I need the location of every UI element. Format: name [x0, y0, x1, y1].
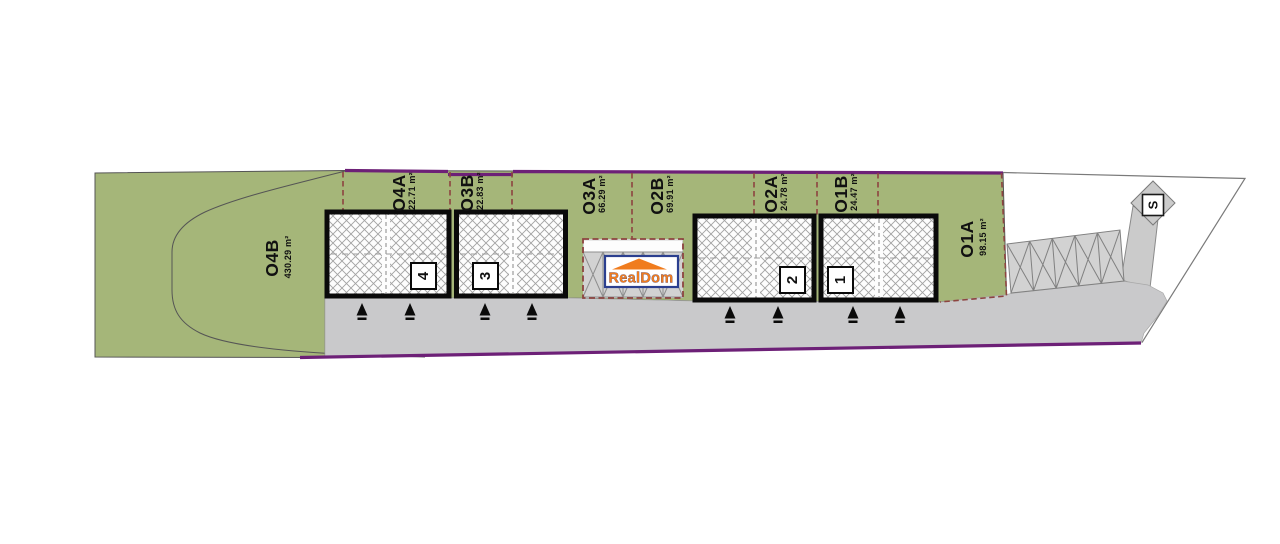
- plot-label-o4a: O4A 22.71 m²: [389, 172, 417, 212]
- svg-text:O2A: O2A: [761, 175, 781, 212]
- plot-label-o3b: O3B 22.83 m²: [457, 172, 485, 212]
- realdom-logo-text: RealDom: [609, 271, 674, 287]
- plot-label-o3a: O3A 66.29 m²: [579, 175, 607, 215]
- plot-label-o2b: O2B 69.91 m²: [647, 175, 675, 215]
- unit-1-label: 1: [832, 276, 849, 284]
- svg-text:O3B: O3B: [457, 174, 477, 211]
- svg-text:O4A: O4A: [389, 174, 409, 211]
- plot-label-o1b: O1B 24.47 m²: [831, 173, 859, 213]
- svg-text:O3A: O3A: [579, 177, 599, 214]
- svg-text:O1B: O1B: [831, 175, 851, 212]
- unit-4-label: 4: [415, 271, 432, 280]
- svg-text:24.78 m²: 24.78 m²: [779, 173, 789, 211]
- unit-2-label: 2: [784, 276, 801, 284]
- plot-label-o4b: O4B 430.29 m²: [262, 236, 293, 279]
- plot-label-o2a: O2A 24.78 m²: [761, 173, 789, 213]
- site-plan-drawing: S: [0, 0, 1280, 544]
- svg-text:O2B: O2B: [647, 177, 667, 214]
- svg-text:O4B: O4B: [262, 239, 282, 276]
- site-plan-canvas: S: [0, 0, 1280, 544]
- svg-text:98.15 m²: 98.15 m²: [978, 218, 988, 256]
- svg-text:66.29 m²: 66.29 m²: [597, 175, 607, 213]
- svg-text:O1A: O1A: [957, 220, 977, 257]
- realdom-logo: RealDom: [605, 256, 678, 287]
- svg-text:69.91 m²: 69.91 m²: [665, 175, 675, 213]
- svg-text:24.47 m²: 24.47 m²: [849, 173, 859, 211]
- unit-3-label: 3: [477, 272, 494, 280]
- svg-text:430.29 m²: 430.29 m²: [283, 236, 293, 279]
- s-marker-label: S: [1146, 200, 1161, 209]
- plot-label-o1a: O1A 98.15 m²: [957, 218, 988, 258]
- svg-text:22.71 m²: 22.71 m²: [407, 172, 417, 210]
- svg-text:22.83 m²: 22.83 m²: [475, 172, 485, 210]
